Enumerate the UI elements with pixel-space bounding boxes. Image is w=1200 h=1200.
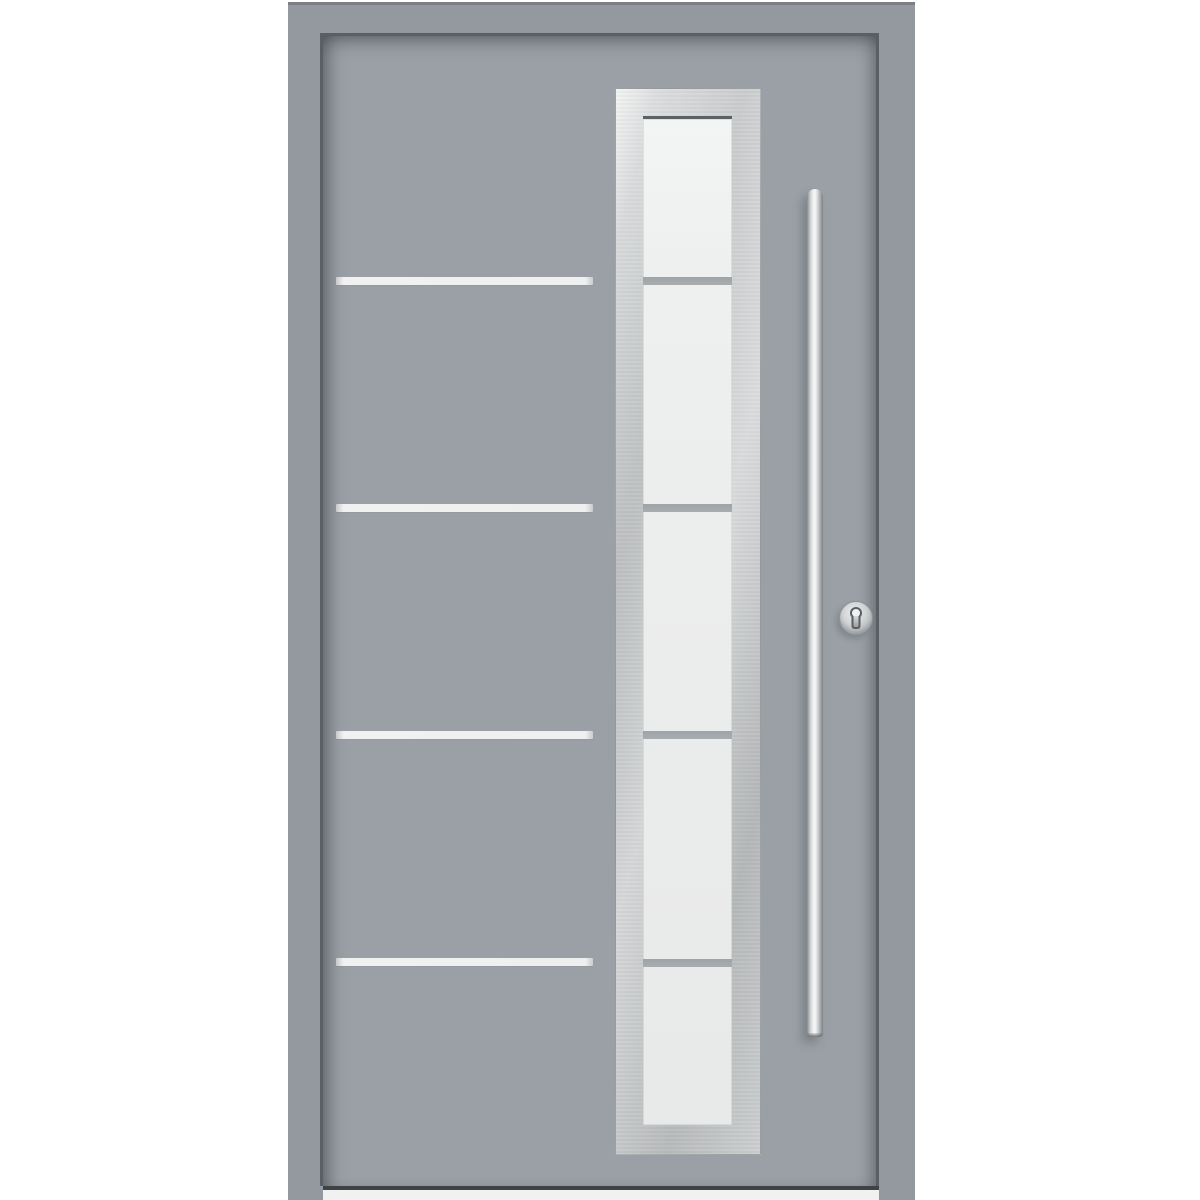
inox-stripe [336,504,593,512]
door-threshold [323,1186,879,1200]
glass-divider [643,959,732,967]
bar-handle [807,189,823,1037]
glass-divider [643,504,732,512]
lock-cylinder-rose [839,601,873,635]
glazing-glass [643,116,732,1125]
door-leaf [320,33,879,1186]
inox-stripe [336,958,593,966]
inox-stripe [336,731,593,739]
glass-divider [643,731,732,739]
keyhole-slot-icon [852,616,861,629]
door-product-photo [0,0,1200,1200]
glass-divider [643,277,732,285]
inox-stripe [336,277,593,285]
